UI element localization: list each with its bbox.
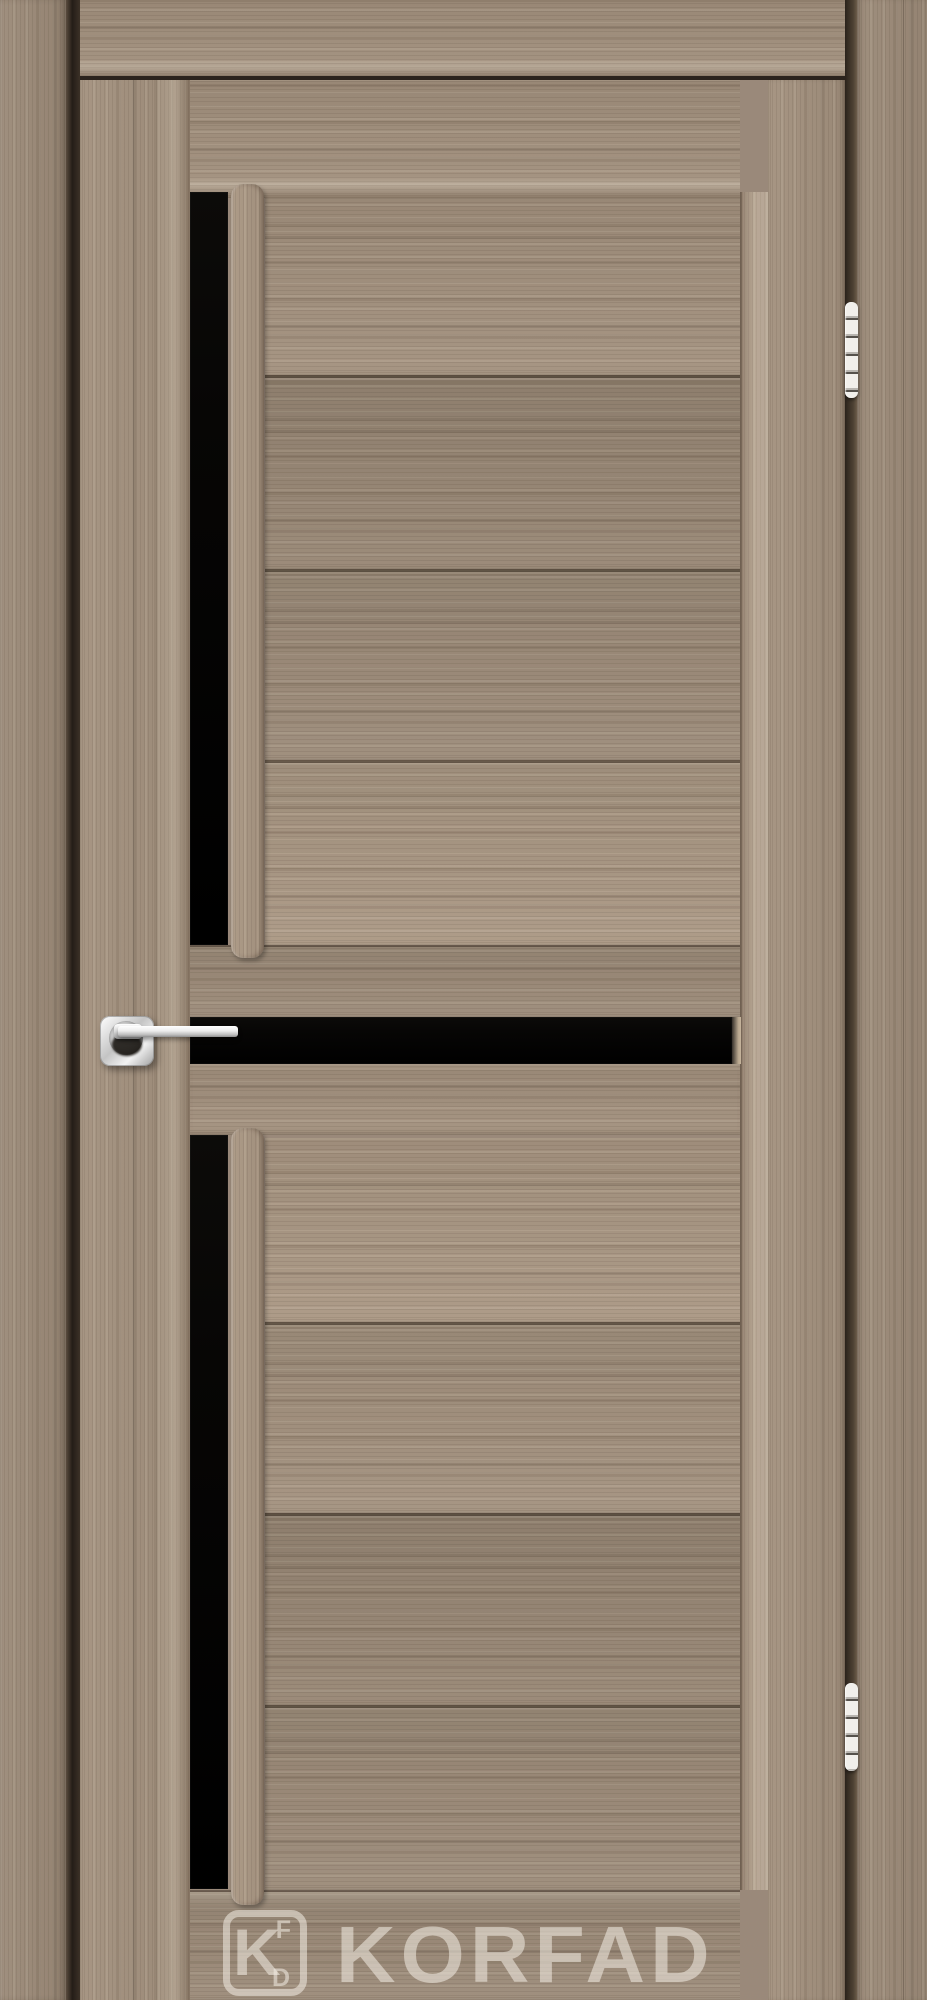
korfad-logo-text: KORFAD	[336, 1912, 715, 1998]
panel-bevel-right	[740, 192, 768, 1890]
hinge-top	[845, 302, 858, 398]
header-bevel	[80, 59, 845, 76]
lower-panel	[265, 1138, 740, 1890]
panel-plank	[265, 1322, 740, 1513]
korfad-logo-mark: K F D	[223, 1910, 307, 1996]
frame-edge-line	[903, 0, 904, 2000]
top-rail-bevel	[190, 176, 740, 198]
leaf-top-rail	[190, 80, 740, 198]
panel-plank	[265, 198, 740, 375]
logo-letter-d: D	[272, 1965, 290, 1991]
panel-plank	[265, 1138, 740, 1322]
leaf-mid-rail-lower	[190, 1064, 740, 1135]
frame-leaf-gap-left	[66, 0, 80, 2000]
stile-bevel-highlight	[152, 80, 190, 2000]
door-frame-header	[80, 0, 845, 80]
panel-plank	[265, 375, 740, 569]
door-handle-lever	[118, 1026, 238, 1037]
bevel-highlight	[740, 192, 768, 1890]
panel-plank	[265, 1705, 740, 1890]
logo-letter-f: F	[276, 1917, 291, 1943]
leaf-mid-rail-upper	[190, 945, 740, 1017]
leaf-stile-right	[768, 80, 845, 2000]
bottom-rail-bevel	[190, 1892, 740, 1907]
panel-plank	[265, 569, 740, 760]
door-frame-left	[0, 0, 66, 2000]
glass-band-middle	[190, 1017, 732, 1064]
door-photo: K F D KORFAD	[0, 0, 927, 2000]
glass-mullion-lower	[231, 1128, 264, 1905]
door-frame-right	[857, 0, 927, 2000]
hinge-bottom	[845, 1683, 858, 1771]
panel-plank	[265, 1513, 740, 1705]
glass-strip-lower	[190, 1135, 228, 1889]
panel-plank	[265, 760, 740, 945]
upper-panel	[265, 198, 740, 945]
glass-strip-upper	[190, 192, 228, 945]
glass-band-end-bevel	[732, 1017, 741, 1064]
glass-mullion-upper	[231, 184, 264, 958]
